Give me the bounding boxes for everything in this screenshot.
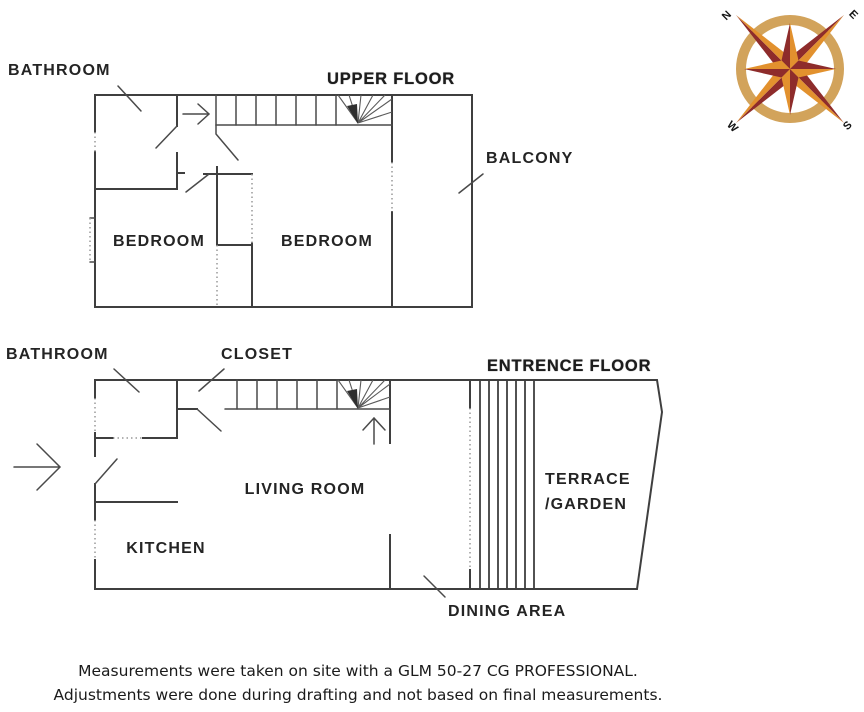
dining-area-label: DINING AREA — [448, 603, 566, 621]
entrance-floor-title: ENTRENCE FLOOR — [487, 357, 651, 376]
upper-staircase — [216, 95, 392, 125]
upper-label-leaders — [118, 86, 483, 193]
terrace-deck-louvers — [480, 380, 534, 589]
terrace-garden-label: TERRACE /GARDEN — [545, 467, 631, 517]
terrace-label-line2: /GARDEN — [545, 492, 631, 517]
upper-floor-walls — [90, 95, 472, 307]
bedroom-left-label: BEDROOM — [113, 233, 205, 251]
stair-winder-wedge — [347, 389, 358, 409]
stair-winder-wedge — [347, 104, 358, 124]
terrace-label-line1: TERRACE — [545, 467, 631, 492]
balcony-label: BALCONY — [486, 150, 574, 168]
upper-floor-title: UPPER FLOOR — [327, 70, 455, 89]
entrance-staircase — [225, 380, 390, 444]
floorplan-page: N E S W BATHROOM UPPER FLOOR BALCONY BED… — [0, 0, 864, 712]
measurement-disclaimer: Measurements were taken on site with a G… — [0, 659, 716, 707]
upper-door-swings — [156, 125, 238, 192]
floorplan-drawing: N E S W — [0, 0, 864, 712]
upper-bathroom-label: BATHROOM — [8, 62, 111, 80]
compass-east-label: E — [846, 8, 860, 22]
upper-direction-arrow — [183, 104, 209, 124]
disclaimer-line1: Measurements were taken on site with a G… — [0, 659, 716, 683]
kitchen-label: KITCHEN — [126, 540, 206, 558]
compass-north-label: N — [720, 9, 734, 23]
upper-floor-plan — [90, 86, 483, 307]
closet-label: CLOSET — [221, 346, 293, 364]
entrance-door-swings — [95, 409, 221, 484]
disclaimer-line2: Adjustments were done during drafting an… — [0, 683, 716, 707]
entrance-bathroom-label: BATHROOM — [6, 346, 109, 364]
living-room-label: LIVING ROOM — [245, 481, 366, 499]
compass-south-label: S — [841, 119, 855, 133]
stairs-up-arrow — [363, 418, 385, 444]
bedroom-right-label: BEDROOM — [281, 233, 373, 251]
entry-arrow — [14, 444, 60, 490]
upper-floor-windows-dotted — [90, 132, 392, 305]
compass-rose: N E S W — [720, 8, 860, 135]
